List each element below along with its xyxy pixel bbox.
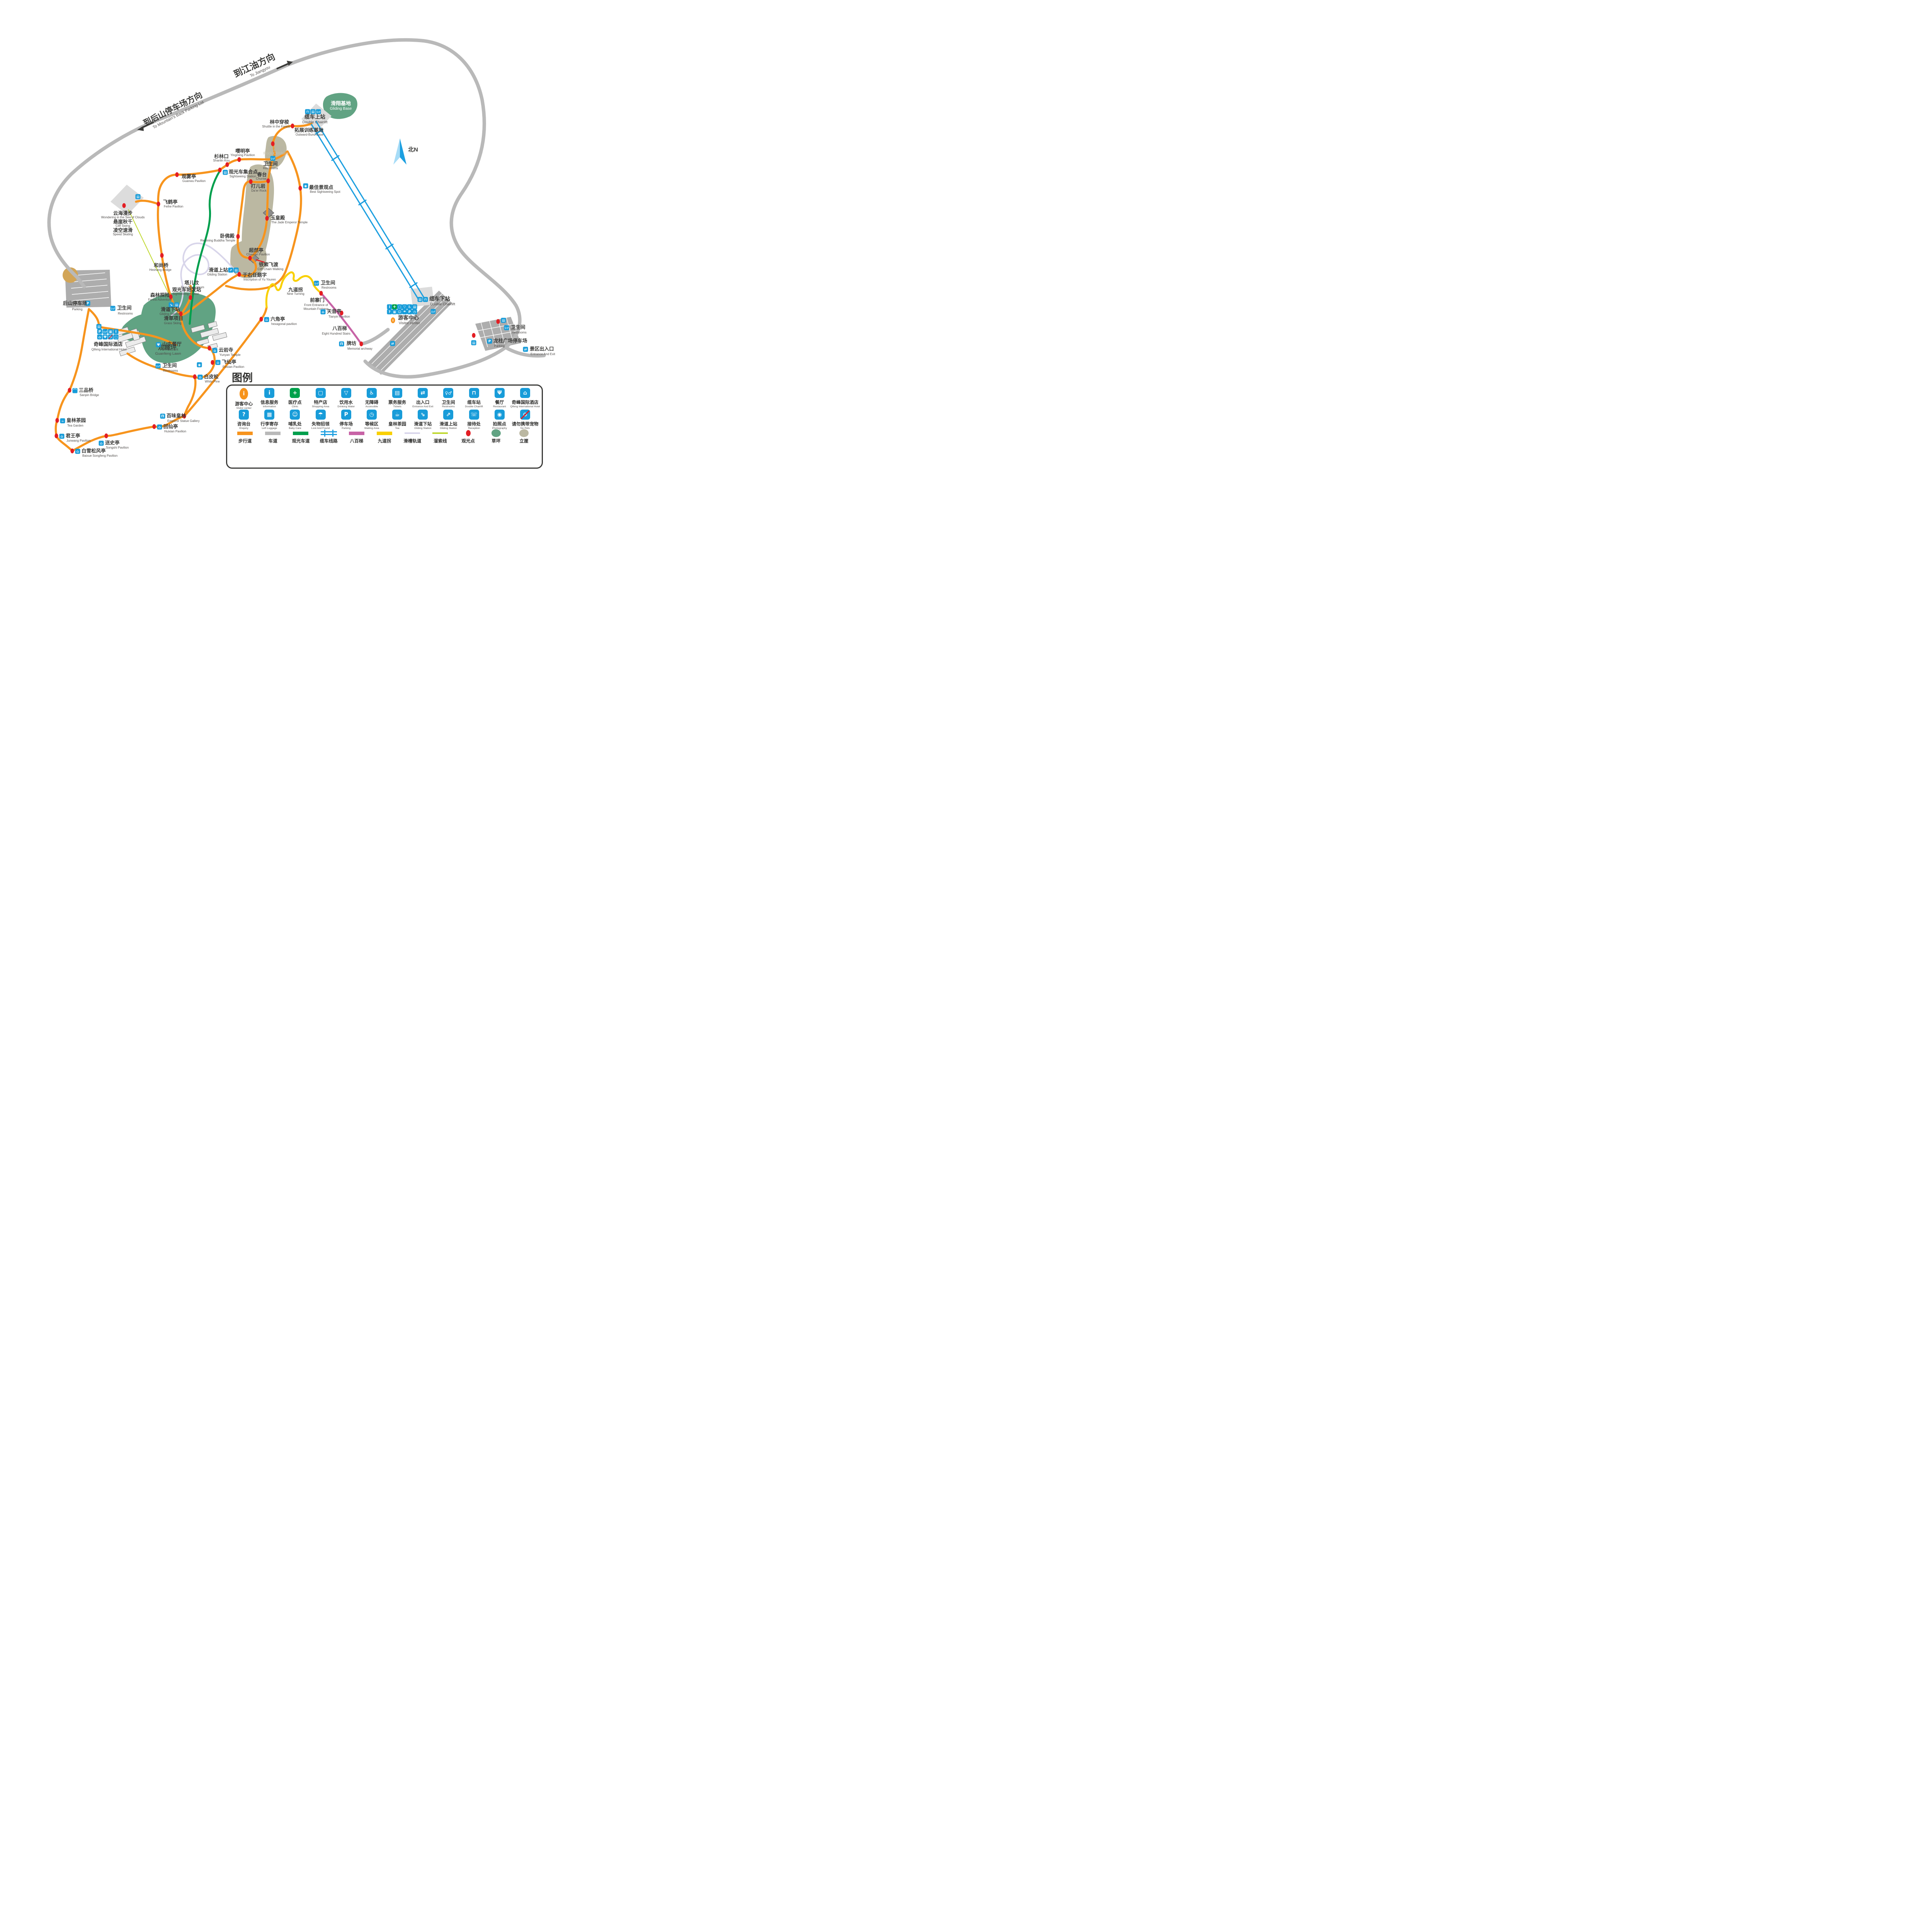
legend-swatch [349, 430, 364, 437]
drinking-water-icon: ▽ [341, 388, 351, 398]
songshi-pavilion-label: Songshi Pavilion [106, 446, 129, 449]
yingming-pavilion-spot-dot [237, 157, 241, 162]
restrooms-icon: ♀♂ [431, 309, 436, 314]
parking-icon: P [341, 410, 351, 420]
tianyin-pavilion: ⌂天音亭Tianyin Pavilion [321, 308, 350, 318]
legend-line-观光点: 观光点 [454, 430, 482, 444]
north-arrow-icon [393, 138, 406, 165]
tickets-icon: ▤ [234, 268, 239, 273]
archway-icon: Π [160, 414, 165, 419]
svg-text:♀♂: ♀♂ [316, 111, 321, 114]
svg-text:◷: ◷ [413, 310, 416, 314]
best-sightseeing-spot-label: Best Sightseeing Spot [310, 190, 340, 194]
shuttle-in-forest-spot-dot [291, 124, 294, 128]
legend-item-baby-care: ☺哺乳处Baby Care [282, 410, 308, 430]
left-luggage-icon: ▦ [392, 310, 397, 315]
reception-icon: ☏ [469, 410, 479, 420]
visitor-center-icon: i [240, 388, 248, 400]
tickets-icon: ▤ [471, 340, 476, 345]
hotel-icon: ⌂ [97, 335, 102, 340]
hexagonal-pavilion-spot-dot [259, 317, 263, 321]
enquiry-icon: ? [239, 410, 249, 420]
svg-text:⌒: ⌒ [73, 388, 77, 393]
accessible-icon: ♿ [407, 304, 412, 310]
legend-item-drinking-water: ▽饮用水Drinking Water [333, 388, 359, 408]
cloud-walk-label: 凌空速滑 [113, 227, 133, 233]
parking-icon: P [407, 310, 412, 315]
grass-skiing-label: 滑草项目 [164, 315, 183, 321]
legend-zh-label: 游客中心 [235, 401, 253, 407]
eight-hundred-stairs-path [321, 293, 361, 344]
legend-line-缆车线路: 缆车线路 [315, 430, 343, 444]
legend-en-label: Entrance And Exit [412, 405, 433, 408]
legend-swatch [492, 430, 501, 437]
spot-visitor-road-spot-dot [472, 333, 475, 338]
qifeng-hotel-label: Qifeng International Hotel [92, 348, 127, 351]
reclining-buddha-temple-label: 卧佛殿 [220, 233, 235, 239]
legend-zh-label: 皇林茶园 [388, 421, 406, 427]
legend-en-label: Tea [395, 427, 400, 430]
visitor-center-label: 游客中心 [398, 315, 419, 321]
yunyan-temple-label: 云岩寺 [219, 347, 233, 353]
legend-zh-label: 行李寄存 [260, 421, 278, 427]
to-back-parking: 到后山停车场方向To Mountain’s Back Parking Lot [142, 90, 206, 133]
svg-text:Π: Π [340, 342, 343, 346]
svg-text:▽: ▽ [403, 305, 406, 309]
shopping-area-icon: ▢ [316, 388, 326, 398]
legend-item-shopping-area: ▢特产店Shopping Area [308, 388, 333, 408]
cable-bottom-station-label: Double Chairlift [430, 302, 455, 306]
huixian-pavilion: ⌂回仙亭Huixian Pavilion [152, 423, 186, 433]
feixian-pavilion-label: 飞仙亭 [222, 359, 236, 365]
restrooms-nine-label: Restrooms [321, 286, 337, 289]
pavilion-icon: ⌂ [60, 434, 65, 439]
svg-text:⇄: ⇄ [524, 348, 527, 352]
legend-item-no-pets: ⊘请勿携带宠物No Pets [512, 410, 538, 430]
baixue-songfeng-pavilion-spot-dot [70, 449, 74, 453]
songshi-pavilion-label: 送史亭 [105, 440, 120, 446]
forest-adventure-label: Forest Adventure [148, 298, 172, 301]
svg-text:i: i [115, 330, 116, 334]
back-parking-label: Parking [72, 308, 82, 311]
huixian-pavilion-spot-dot [152, 424, 156, 429]
tickets-icon: ▤ [501, 318, 506, 323]
baixue-songfeng-pavilion-label: Baixue Songfeng Pavilion [82, 454, 117, 457]
restrooms-icon: ♀♂ [103, 329, 108, 334]
chuntai-label: Chuntai [256, 177, 267, 180]
legend-line-八百梯: 八百梯 [343, 430, 371, 444]
yunyan-temple-label: Yunyan Temple [219, 353, 241, 357]
nine-turning-label: Nine Turning [287, 292, 304, 296]
clinic-icon: + [290, 388, 300, 398]
gliding-station-top-label: 滑道上站 [209, 267, 228, 273]
legend-zh-label: 滑道下站 [414, 421, 432, 427]
legend-item-restaurant: Ψ餐厅Restaurant [487, 388, 512, 408]
svg-text:☂: ☂ [403, 310, 406, 314]
legend-item-left-luggage: ▦行李寄存Left Luggage [257, 410, 282, 430]
legend-zh-label: 车道 [269, 438, 277, 444]
legend-zh-label: 奇峰国际酒店 [512, 399, 538, 405]
chuntai-label: 春台 [257, 172, 267, 177]
legend-zh-label: 九道拐 [378, 438, 391, 444]
legend-item-visitor-center: i游客中心Visitor center [231, 388, 257, 410]
svg-text:⇗: ⇗ [229, 269, 232, 272]
restrooms-south: ♀♂卫生间Restrooms [156, 362, 178, 372]
legend-zh-label: 咨询台 [237, 421, 251, 427]
tickets-icon: ▤ [136, 194, 141, 199]
svg-text:♀♂: ♀♂ [156, 365, 160, 368]
restrooms-west-label: 卫生间 [117, 305, 132, 311]
gliding-station-top-label: Gliding Station [207, 273, 227, 276]
svg-text:i: i [392, 319, 393, 323]
nine-turning: 九道拐Nine Turning [287, 287, 304, 296]
junwang-pavilion-label: 君王亭 [65, 433, 80, 439]
information-icon: i [387, 304, 392, 310]
svg-text:P: P [99, 330, 101, 334]
villa-restaurant-label: Restaurant [163, 348, 179, 351]
legend-line-九道拐: 九道拐 [371, 430, 398, 444]
exit-visitor-center: ⇄ [390, 341, 395, 346]
legend-item-information: i信息服务Information [257, 388, 282, 408]
restrooms-east-label: 卫生间 [511, 324, 526, 330]
emperor-statue-gallery: Π百味皇林Emperor Statue Gallery [160, 413, 200, 423]
svg-text:⌂: ⌂ [61, 435, 63, 439]
legend-en-label: Reception [468, 427, 480, 430]
legend-en-label: Parking [342, 427, 350, 430]
outward-bund-base: 拓展训练基地Outward-Bund Base [294, 127, 324, 136]
best-sightseeing-spot-spot-dot [298, 186, 302, 190]
hexagonal-pavilion-label: hexagonal pavilion [271, 322, 297, 326]
shanlin-kou-label: Shanlin Kou [213, 159, 230, 162]
svg-text:⌂: ⌂ [199, 376, 202, 379]
longzhu-parking-label: 龙柱广场停车场 [493, 338, 527, 344]
enquiry-icon: ? [387, 310, 392, 315]
chaoran-pavilion-label: 超然亭 [248, 247, 264, 253]
legend-row-1: i游客中心Visitor centeri信息服务Information+医疗点C… [231, 388, 538, 410]
shanlin-kou: 杉林口Shanlin Kou [213, 153, 230, 167]
legend-zh-label: 卫生间 [442, 399, 455, 405]
back-parking-label: 后山停车场 [63, 300, 87, 306]
legend-zh-label: 缆车线路 [320, 438, 338, 444]
legend-en-label: Gliding Station [440, 427, 457, 430]
svg-text:⌂: ⌂ [100, 442, 103, 446]
legend-zh-label: 停车场 [340, 421, 353, 427]
restrooms-icon: ♀♂ [314, 281, 319, 286]
legend-line-滑槽轨道: 滑槽轨道 [398, 430, 426, 444]
hexagonal-pavilion: ⌂六角亭hexagonal pavilion [259, 316, 297, 326]
back-parking: P后山停车场Parking [63, 300, 90, 311]
svg-text:⌂: ⌂ [217, 361, 219, 365]
legend-en-label: Double Chairlift [465, 405, 483, 408]
entrance-and-exit-label: 景区出入口 [530, 346, 554, 352]
cloud-walk-label: 悬崖秋千 [113, 219, 133, 224]
cable-top-station-label: 缆车上站 [304, 114, 325, 120]
guanwu-pavilion-spot-dot [175, 172, 179, 177]
feixian-pavilion-label: Feixian Pavilion [223, 365, 244, 369]
restrooms-icon: ♀♂ [270, 156, 276, 161]
legend-zh-label: 观光点 [461, 438, 475, 444]
restrooms-icon: ♀♂ [111, 306, 116, 311]
restrooms-south-label: Restrooms [163, 369, 178, 372]
entrance-exit-icon: ⇄ [523, 347, 528, 352]
legend-zh-label: 无障碍 [365, 399, 379, 405]
baby-care-icon: ☺ [397, 310, 402, 315]
temple-icon: ⌂ [213, 348, 218, 353]
legend-swatch [237, 430, 253, 437]
sanpin-bridge-spot-dot [68, 388, 71, 393]
svg-text:▤: ▤ [97, 325, 100, 329]
svg-text:Ψ: Ψ [104, 335, 107, 339]
legend-en-label: Tickets [393, 405, 401, 408]
huixian-pavilion-label: Huixian Pavilion [164, 430, 186, 433]
svg-text:♿: ♿ [408, 305, 412, 309]
best-sightseeing-spot: ◉最佳景观点Best Sightseeing Spot [298, 184, 340, 194]
svg-text:♀♂: ♀♂ [111, 307, 115, 310]
restrooms-icon: ♀♂ [156, 364, 161, 369]
longzhu-parking-label: Parking [494, 344, 505, 348]
legend-line-立崖: 立崖 [510, 430, 538, 444]
legend-zh-label: 等候区 [365, 421, 379, 427]
svg-text:♀♂: ♀♂ [315, 282, 319, 285]
svg-text:⇄: ⇄ [391, 342, 394, 346]
restrooms-icon: ♀♂ [443, 388, 453, 398]
scenic-area-map: 到江油方向To Jiangyou到后山停车场方向To Mountain’s Ba… [0, 0, 606, 487]
road-paifang-spur [361, 330, 388, 344]
taer-mausoleum-label: 塔儿坟 [184, 280, 199, 286]
entrance-exit-icon: ⇄ [390, 341, 395, 346]
svg-text:▢: ▢ [114, 335, 117, 339]
songshi-pavilion-spot-dot [104, 434, 108, 438]
double-chairlift-icon: ⊓ [469, 388, 479, 398]
legend-en-label: Gliding Station [414, 427, 431, 430]
gliding-down-icon: ⇘ [418, 410, 428, 420]
no-pets-icon: ⊘ [520, 410, 530, 420]
legend-item-entrance-exit: ⇄出入口Entrance And Exit [410, 388, 435, 408]
north-label: 北N [408, 146, 418, 153]
svg-text:◉: ◉ [304, 184, 307, 188]
restrooms-west: ♀♂卫生间Restrooms [111, 305, 133, 315]
heshang-bridge-label: 和尚桥 [153, 262, 168, 268]
svg-text:♀♂: ♀♂ [103, 330, 107, 333]
restaurant-icon: Ψ [495, 388, 505, 398]
heshang-bridge-spot-dot [160, 253, 163, 258]
shanlin-kou-label: 杉林口 [214, 153, 229, 159]
daer-rock-label: 打儿岩 [251, 183, 265, 189]
spot-east-road-spot-dot [496, 319, 500, 324]
cliff-chain-walking-label: 铁索飞渡 [259, 262, 279, 267]
jade-emperor-temple-spot-dot [265, 216, 269, 221]
shopping-area-icon: ▢ [397, 304, 402, 310]
svg-text:P: P [408, 310, 411, 314]
drinking-water-icon: ▽ [402, 304, 407, 310]
chuntai-spot-dot [266, 179, 270, 183]
legend-title: 图例 [232, 369, 253, 384]
legend-zh-label: 接待处 [467, 421, 481, 427]
tea-garden-label: 皇林茶园 [66, 417, 86, 423]
junwang-pavilion-label: Junwang Pavilion [66, 439, 90, 442]
restrooms-visitor-center: ♀♂ [431, 309, 436, 314]
legend-line-步行道: 步行道 [231, 430, 259, 444]
outward-bund-base-label: Outward-Bund Base [296, 133, 324, 136]
cloud-walk-label: Speed Skating [113, 233, 133, 236]
restrooms-icon: ♀♂ [504, 325, 509, 330]
restrooms-summit-label: 卫生间 [263, 161, 278, 167]
svg-text:▤: ▤ [413, 305, 416, 309]
legend-item-enquiry: ?咨询台Enquiry [231, 410, 257, 430]
tickets-icon: ▤ [311, 109, 316, 114]
forest-adventure-label: 森林探险 [150, 292, 170, 298]
svg-text:⌂: ⌂ [265, 318, 268, 322]
restrooms-south-label: 卫生间 [162, 362, 177, 368]
cable-line [311, 121, 424, 301]
shanlin-kou-spot-dot [225, 162, 229, 167]
yu-youren-inscription: 于右任题字Inscription of Yu Youren [243, 272, 276, 281]
white-pine-label: White Pine [205, 380, 220, 383]
svg-text:▤: ▤ [311, 110, 315, 114]
pavilion-icon: ⌂ [75, 449, 80, 454]
waiting-area-icon: ◷ [367, 410, 377, 420]
svg-text:⌂: ⌂ [158, 425, 161, 429]
cloud-walk-label: Cliff Swing [116, 224, 130, 228]
tianyin-pavilion-label: 天音亭 [327, 308, 342, 314]
nine-turning-label: 九道拐 [288, 287, 303, 293]
legend-zh-label: 请勿携带宠物 [512, 421, 538, 427]
legend-en-label: Restaurant [493, 405, 506, 408]
svg-text:▤: ▤ [418, 298, 422, 302]
white-pine-label: 白皮松 [204, 374, 219, 379]
legend-zh-label: 票务服务 [388, 399, 406, 405]
restaurant-icon: Ψ [103, 335, 108, 340]
sightseeing-station-start-spot-dot [189, 295, 192, 300]
legend-zh-label: 步行道 [238, 438, 252, 444]
tickets-west: ▤ [97, 324, 102, 329]
svg-text:⊓: ⊓ [306, 110, 309, 114]
legend-en-label: Baby Care [289, 427, 301, 430]
tickets-icon: ▤ [418, 297, 423, 302]
photography-icon: ◉ [495, 410, 505, 420]
svg-text:▤: ▤ [472, 341, 475, 345]
svg-text:▤: ▤ [136, 195, 139, 199]
hotel-icon: ⌂ [520, 388, 530, 398]
legend-zh-label: 观光车道 [292, 438, 310, 444]
tickets-icon: ▤ [97, 324, 102, 329]
legend-item-reception: ☏接待处Reception [461, 410, 487, 430]
legend-zh-label: 失物招领 [312, 421, 330, 427]
svg-text:▢: ▢ [398, 305, 401, 309]
legend-zh-label: 溜索线 [434, 438, 447, 444]
qifeng-hotel-label: 奇峰国际酒店 [94, 341, 123, 347]
zipline [128, 209, 174, 304]
legend-item-hotel: ⌂奇峰国际酒店Qifeng International Hotel [512, 388, 538, 408]
svg-text:⌂: ⌂ [99, 335, 101, 339]
restrooms-west-label: Restrooms [118, 312, 133, 315]
emperor-statue-gallery-label: Emperor Statue Gallery [167, 419, 200, 423]
svg-text:▤: ▤ [502, 319, 505, 323]
gliding-base: 滑翔基地Gliding Base [330, 100, 352, 111]
svg-text:♀♂: ♀♂ [505, 327, 509, 330]
no-pets-icon: ⊘ [108, 335, 113, 340]
legend-zh-label: 滑槽轨道 [403, 438, 421, 444]
shopping-area-icon: ▢ [114, 335, 119, 340]
reclining-buddha-temple-spot-dot [236, 234, 240, 239]
eight-hundred-stairs: 八百梯Eight Hundred Stairs [322, 325, 350, 335]
visitor-center-icon: i [391, 318, 395, 323]
cable-bottom-station-label: 缆车下站 [429, 296, 450, 302]
legend-item-tea: ☕皇林茶园Tea [384, 410, 410, 430]
legend-en-label: Left Luggage [262, 427, 277, 430]
photo-spot-path: ◉ [197, 362, 202, 367]
svg-text:⌂: ⌂ [214, 349, 216, 353]
shuttle-in-forest-label: Shuttle in the Forest [262, 125, 290, 128]
visitor-center: i+▢▽♿▤?▦☺☂P◷i游客中心Visitor center [387, 304, 420, 325]
feihe-pavilion: 飞鹤亭Feihe Pavilion [156, 199, 183, 208]
svg-text:⊓: ⊓ [424, 298, 427, 302]
feihe-pavilion-spot-dot [156, 202, 160, 206]
restrooms-east-label: Restrooms [512, 331, 527, 334]
svg-text:?: ? [388, 310, 390, 314]
gliding-station-top-spot-dot [237, 272, 241, 277]
legend-item-gliding-up: ⇗滑道上站Gliding Station [435, 410, 461, 430]
waiting-area-icon: ◷ [412, 310, 417, 315]
legend-item-tickets: ▤票务服务Tickets [384, 388, 410, 408]
memorial-archway-label: 牌坊 [347, 340, 357, 346]
svg-text:i: i [389, 305, 390, 309]
cloud-walk-spot-dot [122, 203, 126, 208]
chaoran-pavilion-spot-dot [248, 256, 252, 260]
parking-icon: P [487, 339, 492, 344]
yu-youren-inscription-label: 于右任题字 [243, 272, 267, 278]
svg-text:♀♂: ♀♂ [431, 310, 435, 313]
svg-text:☕: ☕ [61, 419, 64, 423]
north-label-label: 北N [408, 146, 418, 153]
tea-garden-label: Tea Garden [67, 424, 83, 427]
legend-zh-label: 滑道上站 [439, 421, 457, 427]
daer-rock-label: Da’er Rock [251, 189, 267, 192]
gliding-base-label: 滑翔基地 [331, 100, 351, 106]
legend-swatch [466, 430, 471, 437]
front-entrance-fortress: 前寨门Front Entrance ofMountain Fortress [304, 291, 328, 311]
svg-text:▤: ▤ [235, 269, 238, 272]
legend-zh-label: 饮用水 [340, 399, 353, 405]
eight-hundred-stairs-label: Eight Hundred Stairs [322, 332, 350, 335]
legend-swatch [405, 430, 420, 437]
legend-zh-label: 缆车站 [467, 399, 481, 405]
hexagonal-pavilion-label: 六角亭 [270, 316, 285, 322]
legend-item-gliding-down: ⇘滑道下站Gliding Station [410, 410, 435, 430]
legend-item-accessible: ♿无障碍Accessible [359, 388, 384, 408]
huixian-pavilion-label: 回仙亭 [163, 423, 178, 429]
tea-icon: ☕ [392, 410, 402, 420]
legend-en-label: Restrooms [442, 405, 455, 408]
front-entrance-fortress-label: 前寨门 [310, 297, 325, 303]
pavilion-icon: ⌂ [216, 360, 221, 365]
guanwu-pavilion-label: 观雾亭 [182, 173, 196, 179]
yu-youren-inscription-label: Inscription of Yu Youren [243, 278, 276, 281]
restrooms-nine: ♀♂卫生间Restrooms [314, 280, 337, 289]
sightseeing-station-mid-label: 观光车集合点 [229, 169, 258, 175]
pavilion-icon: ⌂ [99, 441, 104, 446]
parking-icon: P [97, 329, 102, 334]
left-luggage-icon: ▦ [108, 329, 113, 334]
grass-skiing-label: Grass Skiing [164, 321, 181, 325]
eight-hundred-stairs-label: 八百梯 [332, 325, 347, 331]
shuttle-in-forest-label: 林中穿梭 [270, 119, 289, 125]
legend-zh-label: 出入口 [416, 399, 430, 405]
bridge-icon: ⌒ [73, 388, 78, 393]
legend-item-parking: P停车场Parking [333, 410, 359, 430]
legend-item-restrooms: ♀♂卫生间Restrooms [435, 388, 461, 408]
legend-line-车道: 车道 [259, 430, 287, 444]
